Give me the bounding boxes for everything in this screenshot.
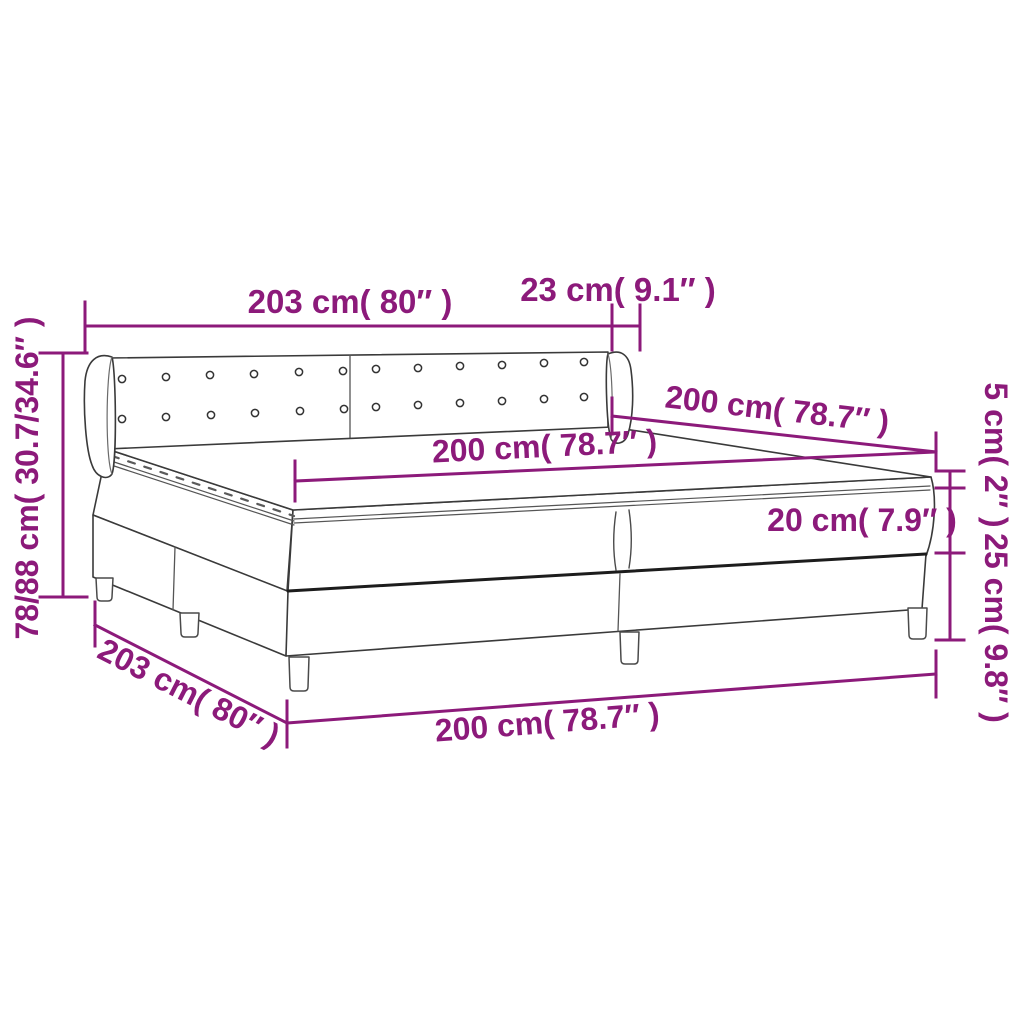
label-topper-height: 5 cm( 2″ ) (978, 382, 1014, 527)
headboard-left-wing (84, 356, 115, 478)
label-wing-depth: 23 cm( 9.1″ ) (520, 271, 716, 308)
label-mattress-height: 20 cm( 7.9″ ) (767, 502, 957, 538)
label-bed-width-bottom: 203 cm( 80″ ) (92, 631, 285, 753)
label-bed-length-top: 200 cm( 78.7″ ) (663, 378, 891, 439)
bed-leg (908, 608, 927, 639)
label-headboard-height: 78/88 cm( 30.7/34.6″ ) (9, 316, 45, 639)
label-box-spring-height: 25 cm( 9.8″ ) (978, 533, 1014, 723)
bed-leg (96, 578, 113, 601)
bed-leg (289, 657, 309, 691)
dimension-diagram: 203 cm( 80″ ) 23 cm( 9.1″ ) 200 cm( 78.7… (0, 0, 1024, 1024)
bed-leg (180, 613, 199, 637)
label-headboard-width: 203 cm( 80″ ) (248, 283, 453, 320)
bed-leg (620, 632, 639, 664)
label-bed-length-bottom: 200 cm( 78.7″ ) (433, 695, 660, 748)
